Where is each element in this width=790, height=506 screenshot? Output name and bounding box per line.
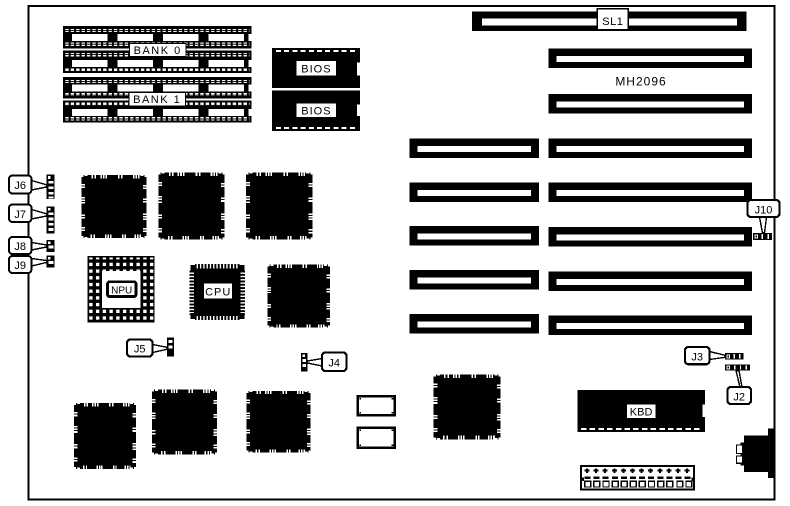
svg-text:J6: J6: [14, 180, 26, 192]
svg-text:J2: J2: [733, 391, 745, 403]
svg-text:J7: J7: [14, 209, 26, 221]
svg-text:KBD: KBD: [630, 406, 653, 418]
svg-text:BANK 1: BANK 1: [133, 94, 181, 106]
svg-text:BIOS: BIOS: [301, 106, 331, 118]
svg-text:J5: J5: [134, 344, 146, 356]
svg-text:J8: J8: [14, 241, 26, 253]
svg-text:SL1: SL1: [602, 16, 623, 28]
svg-text:BIOS: BIOS: [301, 64, 331, 76]
svg-text:J4: J4: [328, 358, 340, 370]
svg-text:J10: J10: [755, 204, 773, 216]
svg-text:NPU: NPU: [111, 285, 132, 296]
svg-text:CPU: CPU: [205, 286, 231, 298]
svg-text:J3: J3: [691, 352, 703, 364]
svg-text:BANK 0: BANK 0: [134, 45, 182, 57]
svg-text:MH2096: MH2096: [615, 75, 666, 89]
svg-text:J9: J9: [14, 260, 26, 272]
